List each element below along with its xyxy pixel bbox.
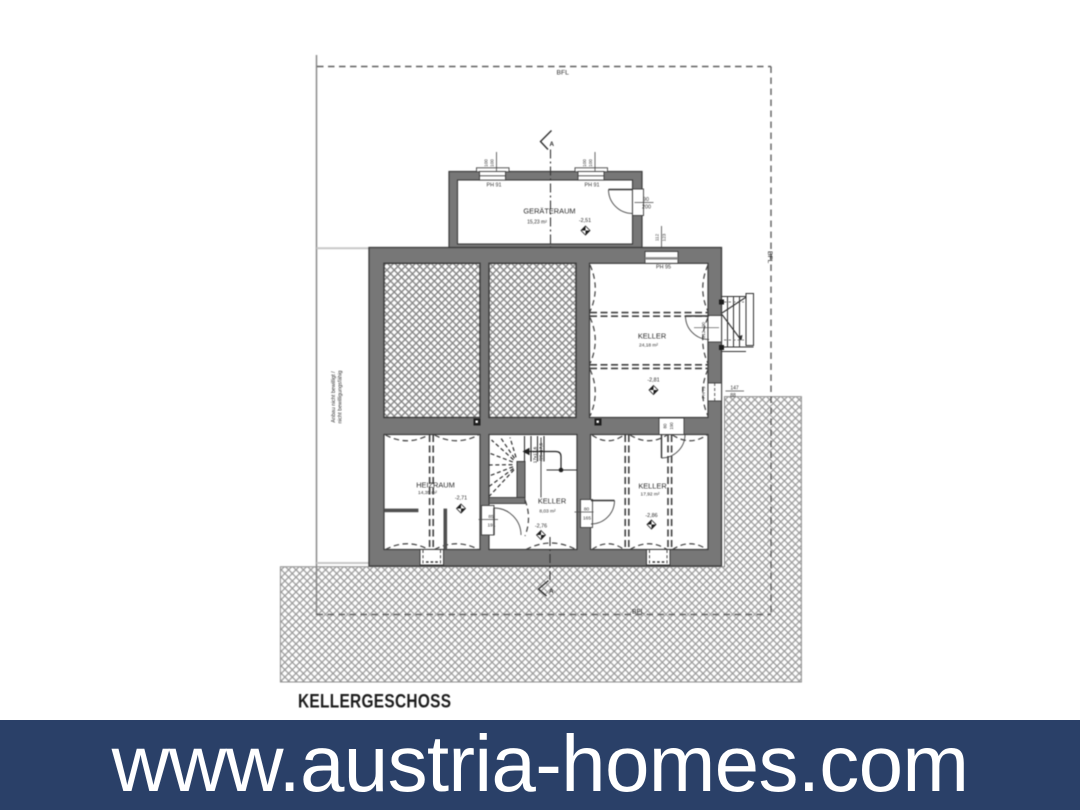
svg-text:100: 100 bbox=[484, 159, 489, 167]
svg-text:88: 88 bbox=[730, 393, 736, 399]
svg-text:100: 100 bbox=[582, 159, 587, 167]
svg-text:KELLER: KELLER bbox=[538, 497, 566, 506]
svg-text:112: 112 bbox=[655, 233, 660, 241]
svg-text:Anbau nicht bewilligt /: Anbau nicht bewilligt / bbox=[331, 371, 337, 423]
svg-text:90: 90 bbox=[701, 322, 706, 327]
svg-text:-2,76: -2,76 bbox=[535, 524, 547, 530]
svg-text:nicht bewilligungsfähig: nicht bewilligungsfähig bbox=[338, 370, 344, 423]
svg-text:BFL: BFL bbox=[632, 609, 645, 616]
svg-text:KELLER: KELLER bbox=[638, 482, 666, 491]
svg-text:190: 190 bbox=[669, 422, 674, 430]
svg-text:/25=17,5: /25=17,5 bbox=[539, 443, 544, 461]
svg-text:80: 80 bbox=[584, 507, 590, 513]
svg-text:165: 165 bbox=[583, 516, 591, 522]
svg-text:85: 85 bbox=[488, 514, 494, 520]
svg-text:A: A bbox=[549, 588, 554, 595]
svg-text:-2,51: -2,51 bbox=[579, 218, 591, 224]
svg-text:-2,86: -2,86 bbox=[645, 513, 657, 519]
svg-text:GERÄTERAUM: GERÄTERAUM bbox=[523, 207, 575, 216]
svg-text:KELLERGESCHOSS: KELLERGESCHOSS bbox=[298, 690, 451, 712]
svg-text:212: 212 bbox=[701, 330, 706, 338]
svg-text:PH 91: PH 91 bbox=[585, 183, 600, 189]
svg-text:17,92 m²: 17,92 m² bbox=[641, 491, 660, 497]
svg-text:17x17,6: 17x17,6 bbox=[533, 446, 538, 463]
svg-text:15,23 m²: 15,23 m² bbox=[527, 220, 547, 226]
svg-text:A: A bbox=[550, 141, 555, 148]
svg-text:100: 100 bbox=[490, 159, 495, 167]
svg-text:BFL: BFL bbox=[766, 251, 773, 264]
svg-text:8,03 m²: 8,03 m² bbox=[539, 508, 556, 514]
svg-text:100: 100 bbox=[588, 159, 593, 167]
svg-text:123: 123 bbox=[662, 233, 667, 241]
svg-text:-2,71: -2,71 bbox=[455, 495, 467, 501]
svg-text:BFL: BFL bbox=[557, 70, 570, 77]
svg-text:14,35 m²: 14,35 m² bbox=[418, 490, 437, 496]
svg-text:24,18 m²: 24,18 m² bbox=[639, 342, 658, 348]
svg-text:HEIZRAUM: HEIZRAUM bbox=[416, 480, 455, 489]
svg-text:KELLER: KELLER bbox=[638, 332, 666, 341]
svg-text:PH 95: PH 95 bbox=[656, 264, 671, 270]
svg-text:200: 200 bbox=[642, 204, 651, 210]
svg-text:-2,81: -2,81 bbox=[647, 378, 659, 384]
svg-text:80: 80 bbox=[663, 423, 668, 428]
svg-text:191: 191 bbox=[487, 523, 495, 529]
svg-text:PH 91: PH 91 bbox=[487, 183, 502, 189]
